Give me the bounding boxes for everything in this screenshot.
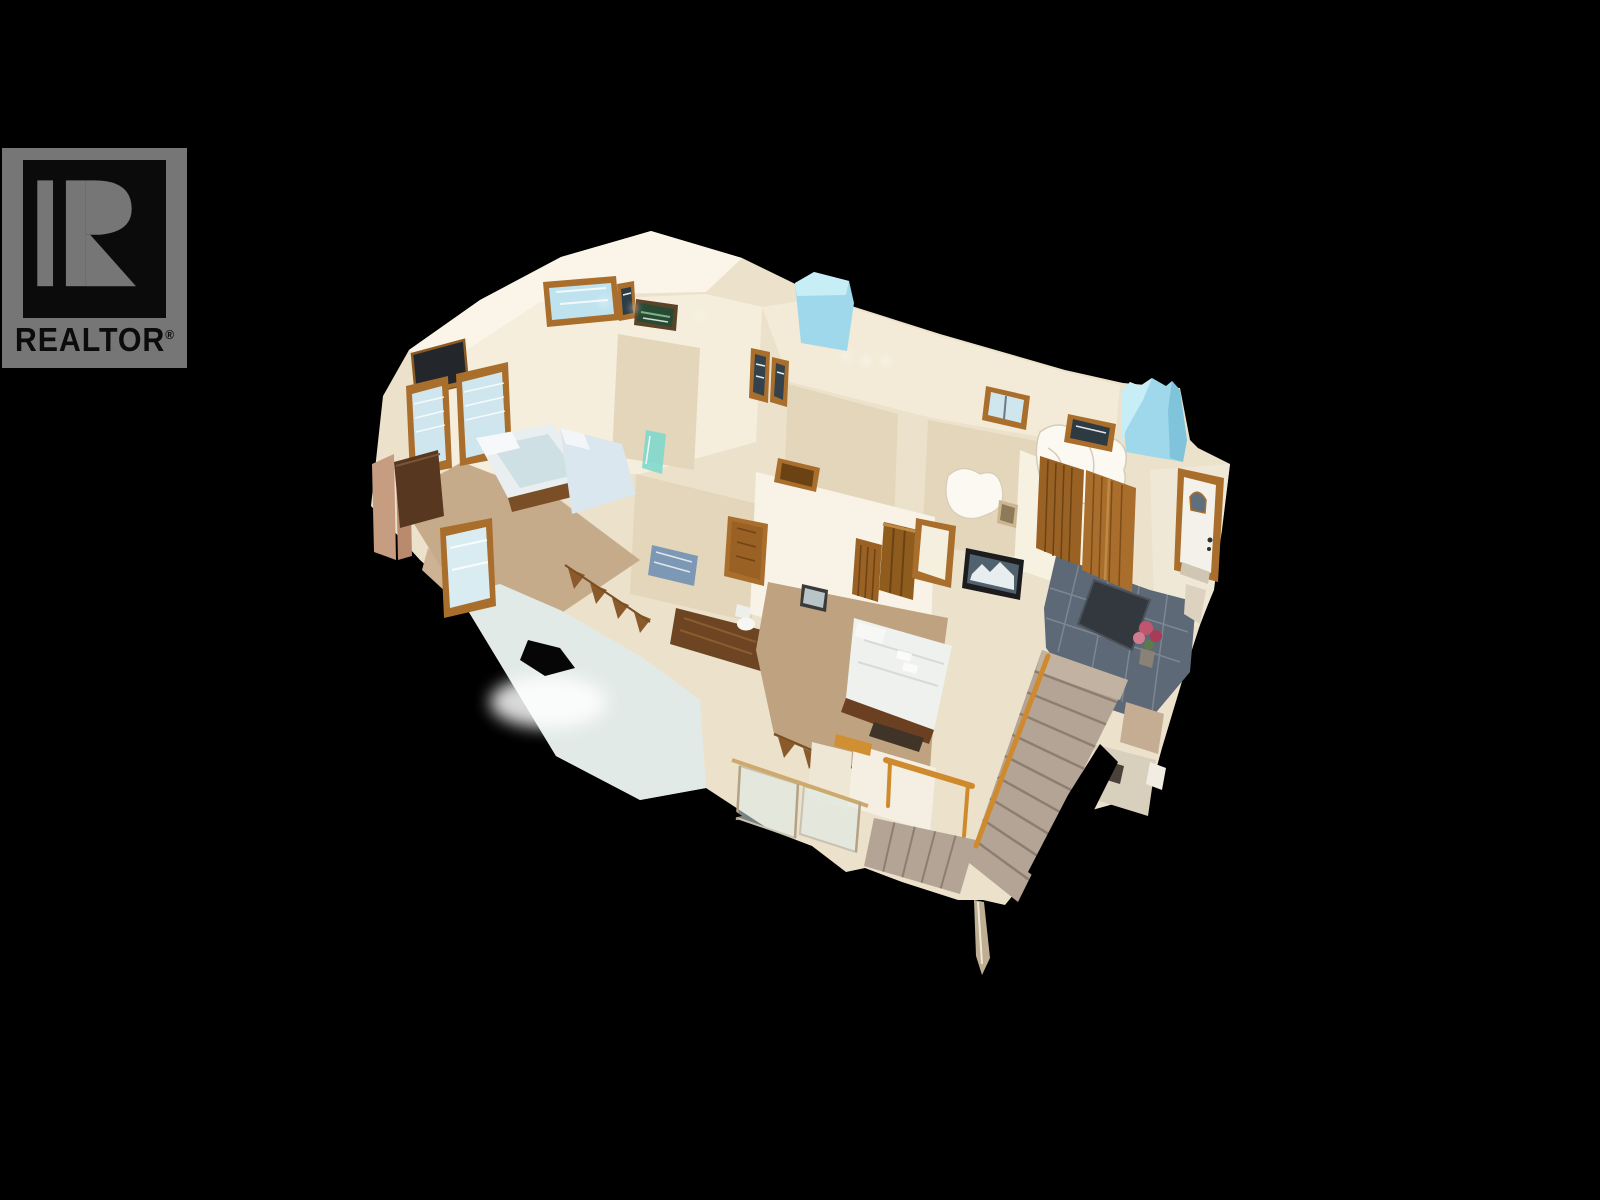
patio-glass-door [440, 518, 496, 618]
skylight-shaft-large [1121, 378, 1187, 462]
mirror-teal-sliver [642, 430, 666, 474]
dollhouse-3d-view [0, 0, 1600, 1200]
barn-door [879, 522, 918, 600]
registered-trademark-symbol: ® [165, 327, 174, 342]
dresser [394, 450, 444, 528]
listing-photo-canvas: REALTOR® [0, 0, 1600, 1200]
open-door-frame [912, 518, 956, 588]
brand-word: REALTOR [15, 321, 165, 358]
wood-door-hall [724, 516, 768, 586]
closet-slat-door [852, 538, 882, 602]
small-clerestory-window [617, 281, 636, 321]
skylight-window [543, 276, 620, 327]
skylight-shaft-small [795, 272, 854, 351]
realtor-r-glyph [23, 160, 166, 318]
realtor-r-logo [23, 160, 166, 318]
realtor-brand-text: REALTOR® [9, 323, 179, 356]
small-frame [997, 500, 1018, 528]
realtor-watermark: REALTOR® [2, 148, 187, 368]
